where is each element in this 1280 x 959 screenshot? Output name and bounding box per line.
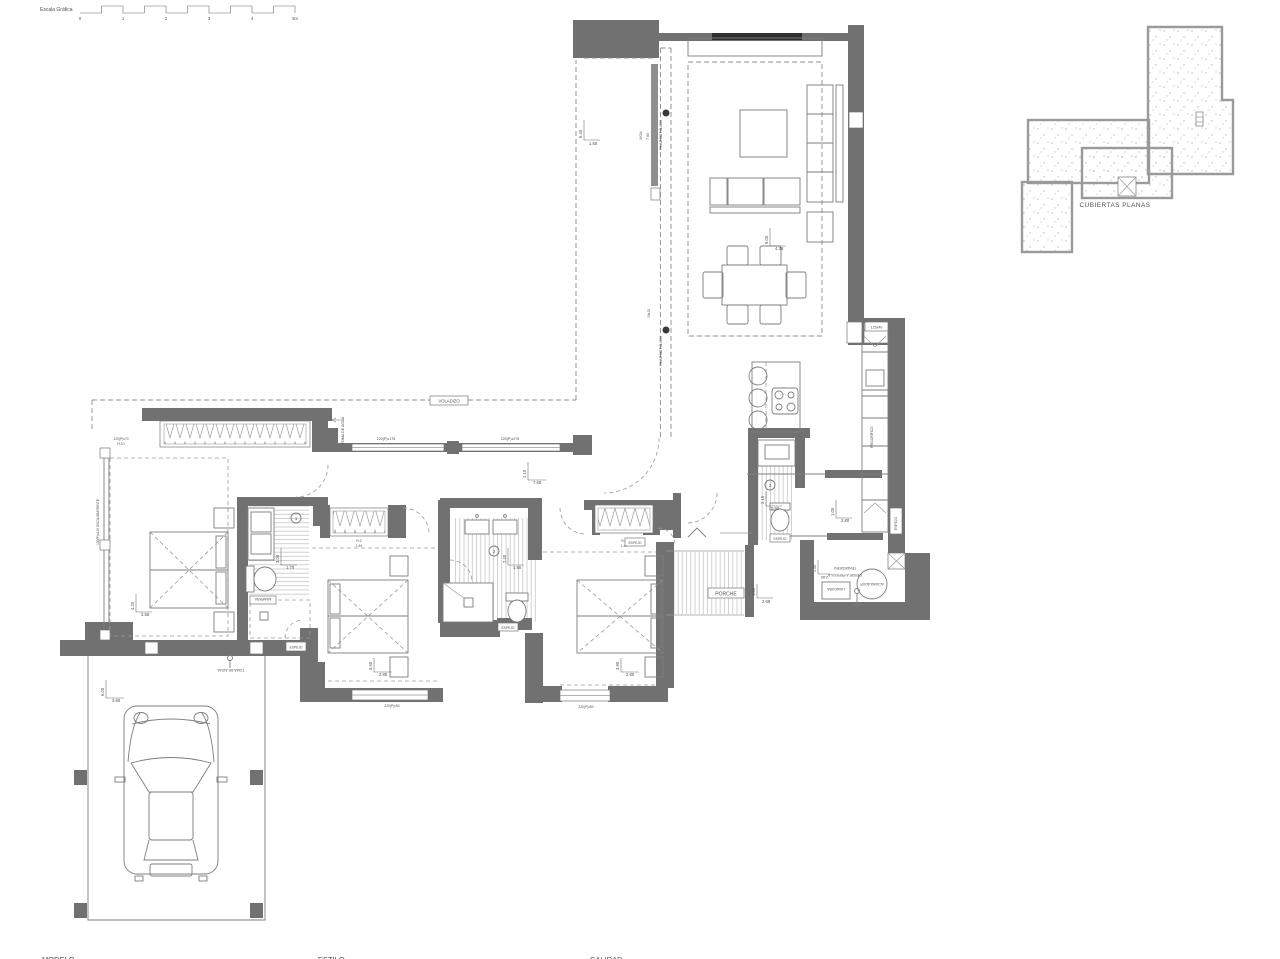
wc-icon (246, 566, 254, 592)
dim: 6.00 (100, 687, 105, 696)
overhang-tag: VOLADIZO (438, 399, 460, 404)
dim: 2.80 (821, 575, 828, 579)
vanity (758, 440, 795, 466)
door-arc (560, 508, 584, 534)
dim: 2.15 (760, 495, 765, 504)
titleblock-label: ESTILO (318, 955, 345, 959)
kitchen-tag: 125x40 (871, 326, 883, 330)
micro-tag: ESPEJO (289, 646, 302, 650)
steel-pillar-icon (663, 110, 670, 117)
micro-tag: ESPEJO (628, 541, 641, 545)
dim: 2.68 (762, 599, 771, 604)
dim: 7.60 (533, 480, 542, 485)
dim: 3.90 (615, 661, 620, 670)
titleblock-label: CALIDAD (590, 955, 623, 959)
pillar-label: PILAR METÁLICO (659, 336, 663, 366)
carport-pillar (74, 903, 87, 918)
micro-tag: ESPEJO (773, 537, 786, 541)
scale-tick: 0 (79, 16, 82, 21)
bed2 (328, 556, 408, 677)
dim: 1.65 (589, 141, 598, 146)
car (115, 706, 227, 881)
dim: 2.88 (379, 672, 388, 677)
floor-plan-drawing: Escala Gráfica 0 1 2 3 4 5m CUBIERTAS PL… (0, 0, 1280, 959)
window-code: 220(P)x50 (384, 704, 399, 708)
scale-tick: 1 (122, 16, 125, 21)
dim: 1.10 (522, 469, 527, 478)
carport (88, 656, 265, 920)
title-block: MODELO ESTILO CALIDAD (42, 955, 623, 959)
shower (443, 583, 493, 622)
dim: 6.40 (578, 129, 583, 138)
micro-tag: ESPEJO (501, 626, 514, 630)
titleblock-label: MODELO (42, 955, 75, 959)
laundry-label: DESDE A PERGOLA (828, 573, 862, 577)
oven-icon (866, 370, 884, 386)
window-code: 1.40 (356, 544, 363, 548)
window-code: 220(P)x275 (501, 437, 520, 441)
carport-pillar (250, 770, 263, 785)
beam-label: VIGA (639, 131, 643, 140)
window-code: 220(P)x175 (377, 437, 396, 441)
window-code: 220(P)x50 (578, 705, 593, 709)
dim: 4.38 (775, 246, 784, 251)
dim: 1.50 (751, 587, 756, 596)
kitchen-island (749, 362, 800, 432)
dim: 3.80 (112, 698, 121, 703)
dim: 4.20 (130, 601, 135, 610)
door-arc (687, 493, 717, 523)
porch-floor (666, 552, 745, 614)
sink (493, 520, 517, 534)
door-arc (296, 465, 328, 497)
dim: 0.90 (771, 506, 780, 511)
roof-plan-inset: CUBIERTAS PLANAS (1022, 27, 1233, 252)
bed1 (150, 508, 234, 632)
window-code: FIJO (117, 442, 125, 446)
dim: 9.05 (764, 235, 769, 244)
dim: 2.40 (502, 554, 507, 563)
carport-pillar (250, 903, 263, 918)
dim: 2.58 (141, 612, 150, 617)
dim: 1.50 (813, 565, 817, 572)
washer-label: LAVADORA (826, 587, 844, 591)
laundry-label: TENDEDERO (834, 566, 857, 570)
beam (651, 64, 658, 186)
dim: 1.05 (830, 507, 835, 516)
coffee-table (740, 110, 787, 157)
door-arc (403, 508, 429, 534)
water-intake-label: TOMA DE AGUA (217, 668, 245, 672)
scale-tick: 5m (292, 16, 298, 21)
steel-pillar-icon (663, 327, 670, 334)
pillar-label: PILAR METÁLICO (659, 120, 663, 150)
roof-plan-label: CUBIERTAS PLANAS (1080, 202, 1151, 209)
water-intake-label: TOMA DE AGUA (341, 416, 345, 444)
scale-tick: 3 (208, 16, 211, 21)
window-code: 120(P)x70 (113, 437, 128, 441)
dim: 2.80 (626, 672, 635, 677)
bed3 (577, 556, 663, 677)
step-marker (688, 528, 706, 537)
micro-tag: ESPEJO (894, 517, 898, 530)
window-code: R:2 (356, 539, 361, 543)
sofa (710, 85, 843, 242)
heater-label: ACUMULADOR (860, 582, 884, 586)
scale-bar-title: Escala Gráfica (40, 7, 73, 13)
pillar-size: 15x15 (647, 309, 651, 318)
chimney-icon (1196, 112, 1203, 126)
exterior-walls (60, 20, 930, 918)
beam-length: 7.00 (646, 133, 650, 140)
dim: 2.80 (841, 518, 850, 523)
scale-tick: 4 (251, 16, 254, 21)
dim: 3.05 (275, 554, 280, 563)
door-arc (604, 438, 659, 493)
fridge-label: FRIGORÍFICO (870, 426, 874, 448)
scale-bar: Escala Gráfica 0 1 2 3 4 5m (40, 6, 298, 21)
micro-tag: MAMPARA (254, 597, 271, 601)
sink (465, 520, 489, 534)
dining-set (703, 246, 806, 324)
floor-plan-sheet: Escala Gráfica 0 1 2 3 4 5m CUBIERTAS PL… (0, 0, 1280, 959)
dim: 3.50 (368, 661, 373, 670)
carport-pillar (74, 770, 87, 785)
window-code: 100(P)x115 OSCILOBATIENTE (96, 498, 100, 545)
scale-tick: 2 (165, 16, 168, 21)
porch-label: PORCHE (715, 592, 737, 598)
dim: 1.70 (286, 565, 295, 570)
dim: 1.90 (513, 565, 522, 570)
